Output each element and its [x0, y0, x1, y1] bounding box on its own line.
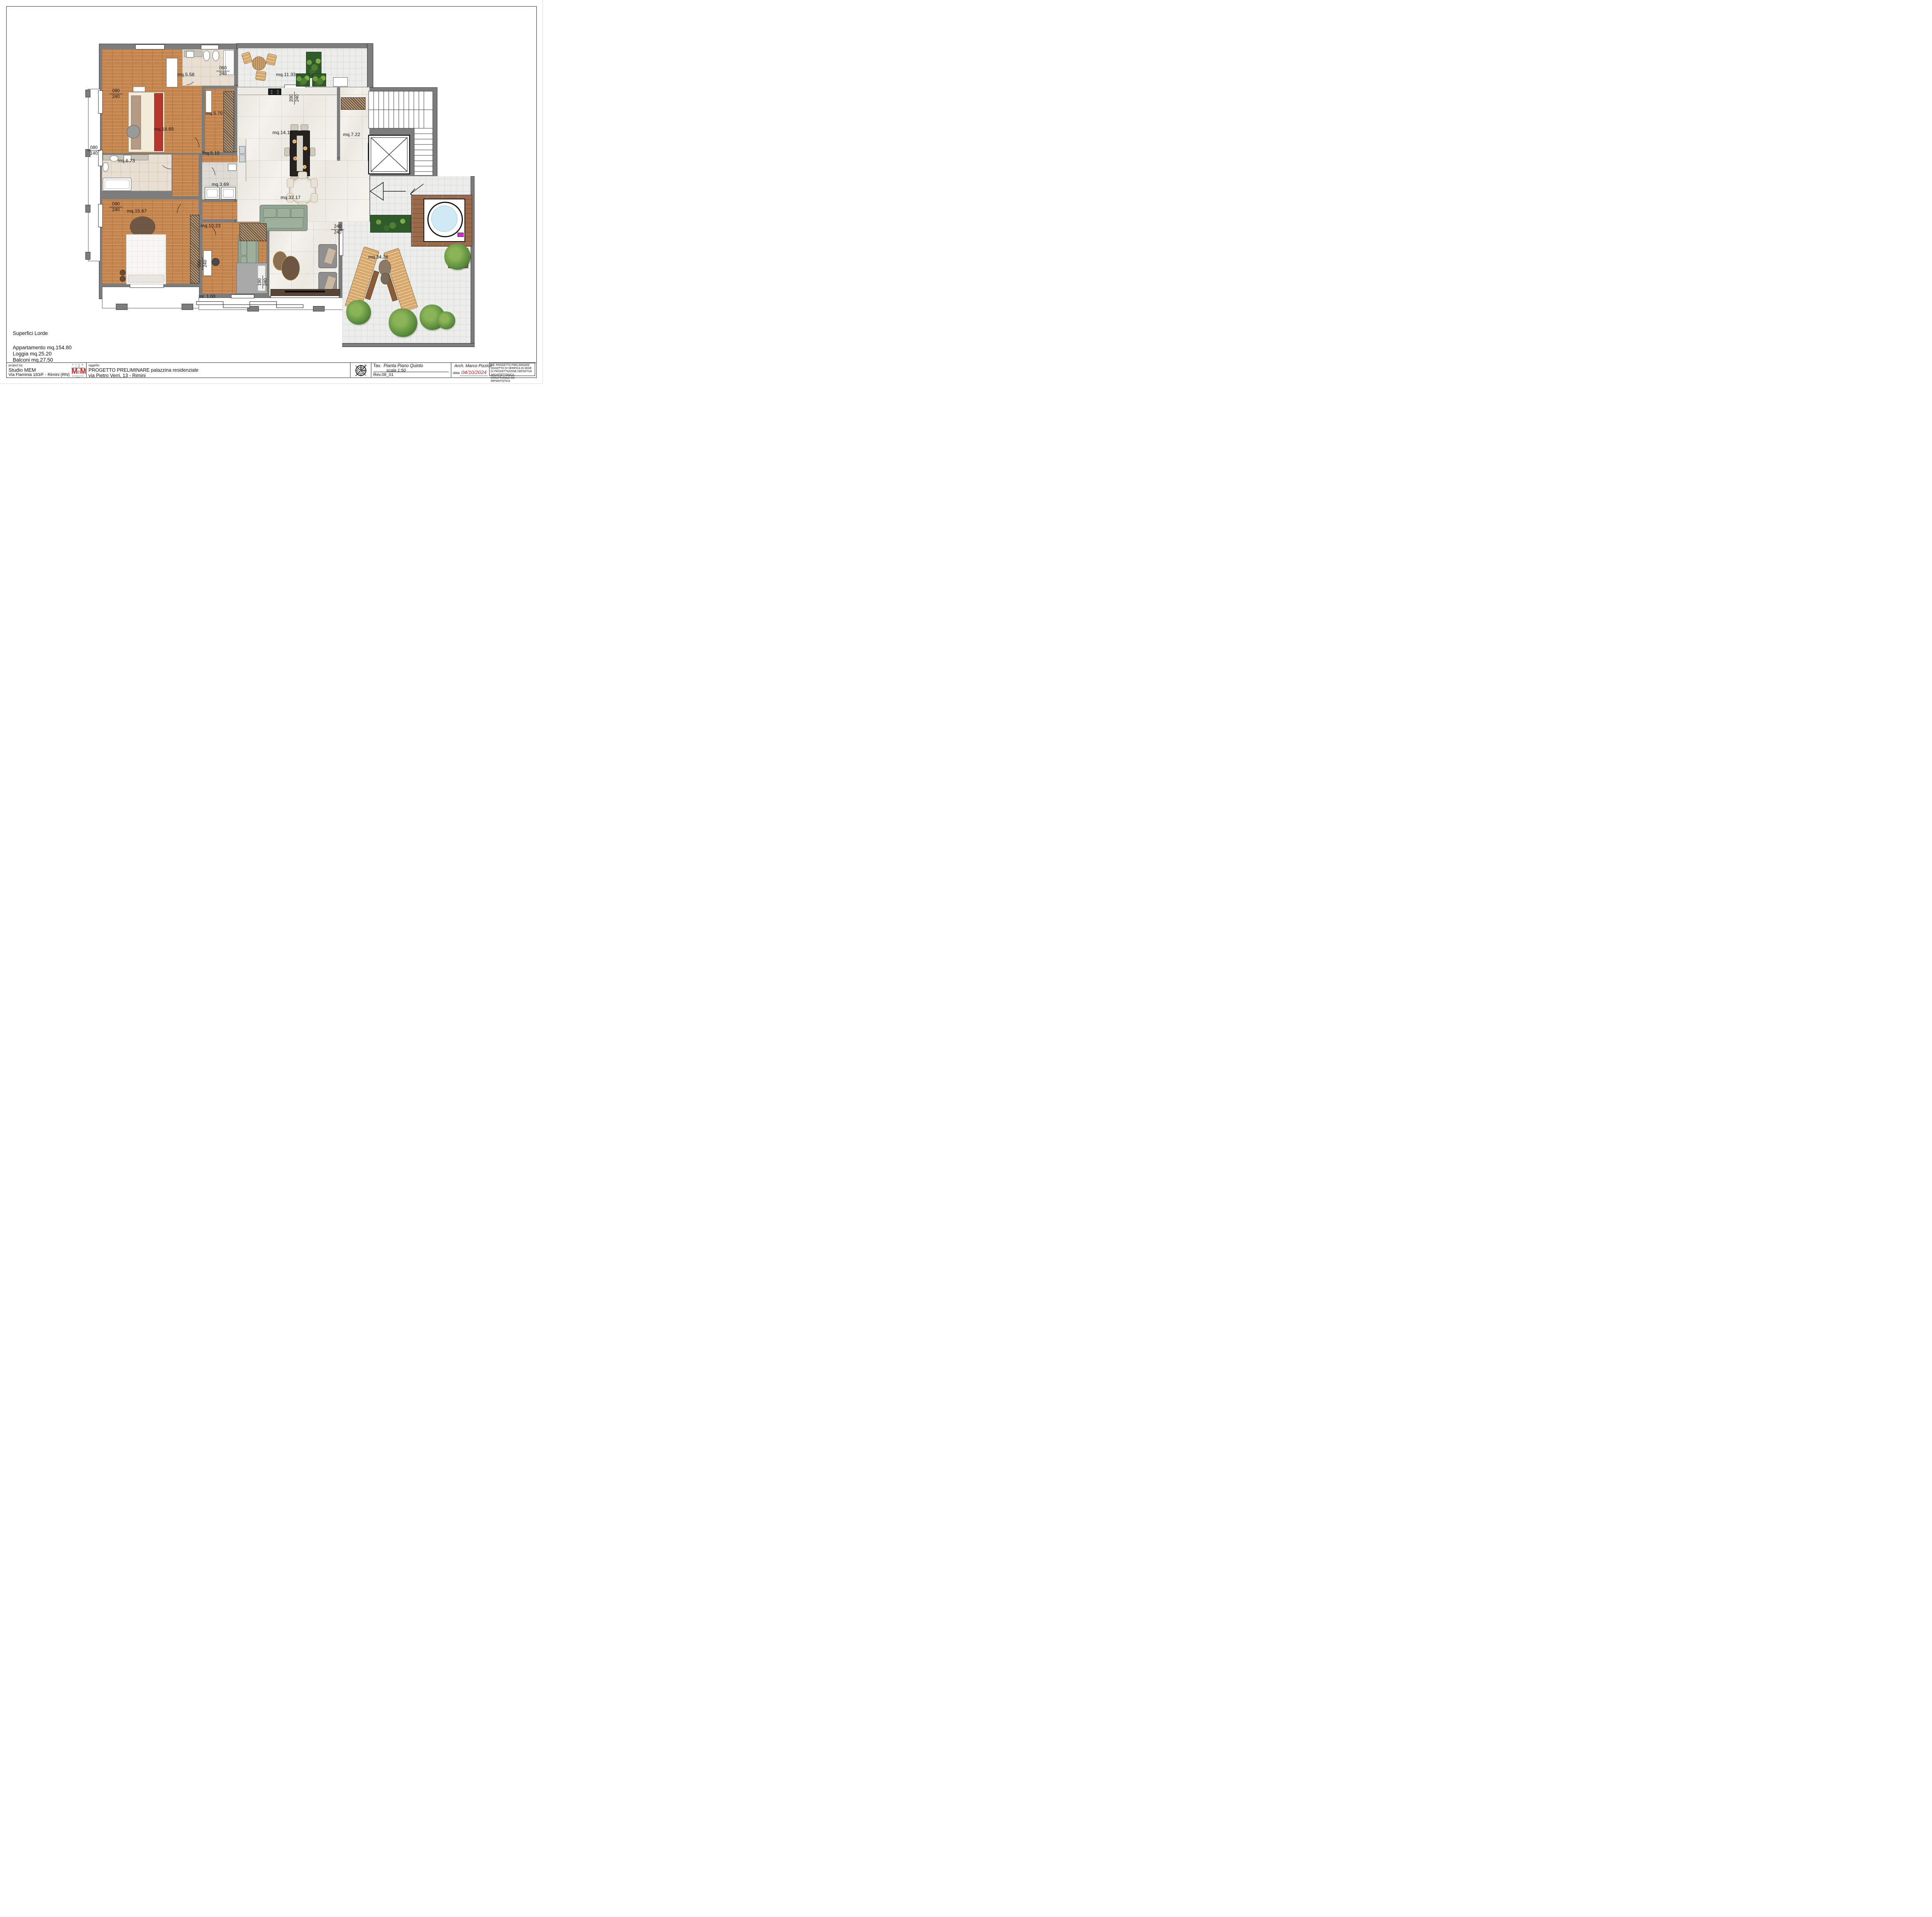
sofa-seat — [264, 218, 303, 228]
dining-chair — [310, 148, 315, 156]
sofa-cushion — [291, 208, 304, 218]
stool — [120, 276, 126, 282]
toilet — [203, 51, 210, 61]
summary-item: Loggia mq.25.20 — [13, 351, 71, 357]
studio-address: Via Flaminia 183/F - Rimini (RN) — [9, 373, 70, 377]
food-plate — [303, 146, 307, 150]
balcony-pilaster — [85, 252, 90, 260]
scale-bar-segment — [250, 301, 277, 305]
dim-den: 240 — [112, 95, 119, 99]
dim-num: 090 — [197, 260, 202, 267]
bed-runner — [131, 95, 141, 150]
svg-text:N: N — [364, 364, 366, 367]
date-value: 04/10/2024 — [461, 369, 486, 375]
date-underline — [460, 376, 488, 376]
dryer — [221, 187, 236, 199]
area-summary: Superfici Lorde Appartamento mq.154.80 L… — [13, 330, 71, 363]
room-label: mq.15.67 — [127, 208, 147, 214]
kitchen-sink — [239, 155, 245, 162]
dim-num: 240 — [334, 224, 341, 229]
room-label: mq.34.26 — [368, 254, 388, 260]
armchair-gray — [127, 125, 140, 138]
room-label: mq.5.15 — [202, 150, 220, 156]
toilet — [103, 162, 109, 172]
tv — [285, 291, 325, 293]
nightstand — [133, 87, 145, 92]
parapet-terrace-south-bottom — [342, 343, 474, 347]
object-line1: PROGETTO PRELIMINARE palazzina residenzi… — [88, 367, 199, 373]
titleblock-divider — [371, 362, 371, 377]
wardrobe — [240, 223, 267, 241]
room-label: mq.5.58 — [177, 72, 195, 77]
dining-chair-cream — [298, 172, 307, 179]
dimension: 090240 — [109, 88, 122, 99]
armchair-pillow — [323, 248, 336, 265]
dining-table — [290, 131, 310, 176]
sink — [186, 51, 194, 58]
object-label: oggetto — [88, 363, 99, 367]
dim-bar — [109, 207, 122, 208]
sofa-cushion — [241, 239, 247, 255]
desk-chair — [212, 258, 219, 266]
room-label: mq.7.22 — [343, 132, 361, 137]
logo-mem-text: MeM — [71, 368, 85, 375]
room-label: mq.18.65 — [154, 126, 174, 132]
hot-tub-control — [457, 233, 464, 237]
studio-name: Studio MEM — [9, 367, 36, 373]
balcony-pilaster — [85, 90, 90, 97]
room-label: mq.11.33 — [276, 72, 296, 77]
palm-plant — [437, 311, 455, 329]
dim-num: 080 — [90, 145, 97, 150]
palm-plant — [346, 300, 371, 325]
sheet-title-label: Tav. — [373, 364, 381, 368]
logo-subtitle: Architectural Lab — [71, 375, 85, 378]
outdoor-table-round — [252, 56, 266, 70]
side-table-stone — [381, 273, 390, 284]
dimension: 060240 — [216, 66, 230, 76]
dining-chair — [301, 124, 308, 131]
room-label: mq.32.17 — [281, 195, 301, 200]
hot-tub — [427, 202, 463, 237]
dim-bar — [202, 257, 203, 270]
sofa-cushion — [277, 208, 290, 218]
room-label: mq.5.70 — [206, 111, 223, 116]
hot-tub-pad — [423, 199, 465, 242]
dim-den: 240 — [295, 94, 300, 102]
planter-box — [312, 73, 326, 87]
room-hallway-b — [202, 155, 238, 162]
preliminary-note: NB: PROGETTO PRELIMINARE OGGETTO DI VERI… — [489, 363, 535, 376]
sofa-horizontal — [260, 205, 308, 231]
dim-num: 060 — [219, 66, 226, 70]
kitchen-sink — [239, 146, 245, 154]
dim-bar — [331, 230, 344, 230]
plant — [444, 243, 471, 270]
dimension: 190240 — [257, 276, 268, 289]
dim-num: 090 — [112, 202, 119, 206]
titleblock-divider — [350, 362, 350, 377]
sheet-title-text: Pianta Piano Quinto — [384, 364, 423, 368]
room-label: mq.3.69 — [212, 182, 229, 187]
bathtub-inner — [105, 180, 129, 189]
window — [98, 90, 103, 114]
room-label: mq.14.13 — [272, 130, 293, 135]
room-hallway-a — [172, 155, 199, 196]
object-line2: via Pietro Verri, 13 - Rimini — [88, 373, 146, 378]
balcony-pilaster — [116, 304, 128, 310]
scale-bar-segment — [196, 301, 223, 305]
dresser — [166, 58, 178, 87]
hot-tub-water — [431, 206, 457, 232]
kitchen-counter-top — [238, 88, 337, 95]
balcony-west — [88, 89, 100, 261]
dimension: 080140 — [87, 145, 100, 156]
dim-bar — [87, 151, 100, 151]
sofa-cushion — [263, 208, 276, 218]
stool — [120, 270, 126, 276]
project-by-label: project by — [9, 363, 23, 367]
dim-bar — [263, 276, 263, 289]
dimension: 090240 — [109, 202, 122, 212]
dimension: 240240 — [331, 224, 344, 235]
dining-chair-cream — [311, 193, 318, 202]
palm-plant — [389, 308, 417, 337]
parapet-terrace-north-right — [367, 43, 373, 88]
dim-den: 240 — [203, 260, 208, 267]
floor-plan: mq.18.65 mq.5.58 mq.5.70 mq.11.33 mq.14.… — [0, 0, 543, 313]
logo-m2: M — [80, 367, 86, 376]
dining-chair — [284, 148, 290, 156]
titleblock-divider — [86, 362, 87, 377]
dining-chair-cream — [287, 179, 294, 188]
window — [98, 204, 103, 227]
date-label: data — [453, 371, 460, 375]
wardrobe — [190, 215, 199, 284]
dim-den: 240 — [264, 278, 268, 286]
tav-cell-line — [373, 372, 449, 372]
dim-num: 090 — [112, 88, 119, 93]
room-label: mq.6.73 — [118, 158, 135, 163]
wardrobe — [341, 97, 366, 110]
titleblock-separator — [6, 362, 536, 363]
bed-headboard-red — [154, 93, 163, 151]
balcony-pilaster — [85, 205, 90, 213]
balcony-pilaster — [313, 306, 325, 311]
bathtub — [103, 178, 131, 191]
studio-mem-logo: S T U D I O MeM Architectural Lab — [71, 364, 85, 378]
dimension: 200240 — [289, 92, 299, 105]
food-plate — [303, 165, 306, 169]
dim-den: 140 — [90, 151, 97, 156]
scale-bar-segment — [223, 304, 250, 308]
logo-m1: M — [71, 367, 77, 376]
sink-oval — [110, 155, 118, 162]
dim-num: 200 — [289, 94, 294, 102]
dim-bar — [109, 94, 122, 94]
table-runner — [297, 136, 303, 171]
dim-den: 240 — [334, 230, 341, 235]
revision: Rev.08_01 — [373, 373, 393, 377]
drawing-sheet: mq.18.65 mq.5.58 mq.5.70 mq.11.33 mq.14.… — [0, 0, 543, 383]
scale-bar: mt. 1.00 — [196, 294, 308, 310]
dim-den: 240 — [112, 208, 119, 213]
cooktop — [268, 88, 281, 95]
washing-machine — [205, 187, 219, 199]
dim-bar — [216, 71, 230, 71]
bidet — [213, 51, 219, 61]
outdoor-chair — [255, 70, 266, 81]
scale-bar-label: mt. 1.00 — [199, 294, 215, 299]
coffee-table — [281, 256, 300, 281]
wardrobe — [223, 91, 234, 152]
laundry-sink — [228, 164, 236, 171]
sheet-title: Tav. Pianta Piano Quinto — [373, 364, 423, 368]
dining-chair-cream — [311, 179, 318, 188]
food-plate — [293, 139, 296, 143]
planter-white — [333, 77, 348, 87]
summary-item: Appartamento mq.154.80 — [13, 345, 71, 351]
bed-pillows — [128, 275, 164, 282]
dim-bar — [294, 92, 295, 105]
bed-double — [126, 234, 166, 284]
compass-rose-icon: N — [354, 363, 368, 377]
summary-title: Superfici Lorde — [13, 330, 71, 336]
planter-box — [296, 73, 310, 87]
cabinet — [206, 90, 212, 113]
hedge-planter — [370, 215, 411, 233]
food-plate — [293, 156, 297, 160]
titleblock-divider — [451, 362, 451, 377]
architect-name: Arch. Marco Pizzioli — [454, 364, 492, 368]
dimension: 090240 — [197, 257, 207, 270]
window — [135, 44, 165, 49]
armchair — [318, 244, 337, 268]
window — [201, 45, 219, 49]
room-hallway-c — [202, 202, 238, 219]
scale-bar-segment — [276, 304, 303, 308]
dim-num: 190 — [257, 278, 262, 286]
room-label: mq.10.23 — [201, 223, 221, 228]
bed-double — [128, 92, 165, 152]
balcony-pilaster — [182, 304, 193, 310]
dim-den: 240 — [219, 72, 226, 77]
